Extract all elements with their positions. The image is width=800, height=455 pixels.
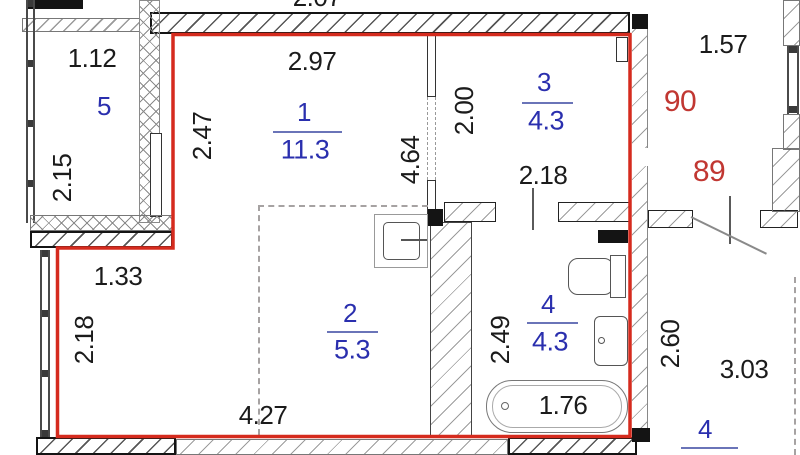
wall-room1-room3-upper bbox=[427, 34, 436, 97]
dim-room5-width: 1.12 bbox=[68, 45, 117, 71]
room-number-3: 3 bbox=[537, 69, 551, 95]
dim-bathtub-length: 1.76 bbox=[539, 392, 588, 418]
wall-far-right-mid bbox=[783, 114, 800, 150]
wall-room1-room3-dashed bbox=[427, 97, 436, 180]
dim-bath-height: 2.49 bbox=[487, 316, 513, 365]
room-area-4: 4.3 bbox=[532, 329, 568, 356]
dim-room2-left-height: 2.18 bbox=[71, 316, 97, 365]
wall-bottom-middle bbox=[176, 439, 508, 455]
room4-fraction-line bbox=[527, 322, 578, 324]
toilet-bowl bbox=[568, 258, 614, 295]
washing-machine-mark bbox=[401, 239, 427, 241]
sink-faucet-dot bbox=[598, 337, 605, 344]
wall-bath-top-right bbox=[558, 202, 630, 222]
wall-top-exterior bbox=[150, 12, 630, 34]
boundary-dashed-right bbox=[794, 277, 796, 455]
wall-bottom-right bbox=[508, 437, 637, 455]
door-leaf-entry bbox=[616, 37, 628, 62]
dim-hall-height: 4.64 bbox=[397, 136, 423, 185]
unit-number-89: 89 bbox=[693, 157, 725, 187]
room-area-1: 11.3 bbox=[281, 137, 330, 164]
dim-tick-room3 bbox=[532, 188, 534, 230]
window-far-right bbox=[787, 46, 799, 114]
wall-right-strip-gap bbox=[632, 148, 648, 166]
room-number-1: 1 bbox=[297, 99, 311, 125]
dim-room5-height: 2.15 bbox=[49, 154, 75, 203]
room-number-4-neighbor: 4 bbox=[698, 416, 712, 442]
window-balcony-left bbox=[26, 0, 35, 223]
washing-machine-drum bbox=[383, 222, 420, 260]
room-number-4: 4 bbox=[541, 291, 555, 317]
vent-shaft-black bbox=[598, 230, 628, 243]
toilet-tank bbox=[610, 255, 626, 298]
niche-dashed-horizontal bbox=[258, 205, 428, 207]
wall-balcony-top bbox=[22, 18, 140, 32]
wall-pier-black bbox=[428, 209, 443, 226]
wall-right-corner-top bbox=[632, 14, 648, 29]
unit-number-90: 90 bbox=[664, 87, 696, 117]
bathtub-drain bbox=[501, 402, 509, 410]
wall-right-strip bbox=[632, 15, 648, 437]
dim-room1-width: 2.97 bbox=[288, 48, 337, 74]
room-area-2: 5.3 bbox=[334, 337, 370, 364]
room-number-2: 2 bbox=[343, 300, 357, 326]
wall-far-right-upper bbox=[783, 0, 800, 46]
wall-corridor-bottom-right bbox=[760, 210, 798, 228]
wall-top-left-stub bbox=[28, 0, 83, 9]
wall-bottom-left bbox=[36, 437, 176, 455]
dim-room1-height: 2.47 bbox=[189, 112, 215, 161]
wall-right-corner-bottom bbox=[632, 428, 650, 442]
room3-fraction-line bbox=[522, 102, 573, 104]
room-area-3: 4.3 bbox=[528, 108, 564, 135]
room4-neighbor-fraction-line bbox=[681, 447, 738, 449]
dim-right-room-height: 2.60 bbox=[657, 320, 683, 369]
window-left-lower bbox=[40, 250, 50, 437]
wall-bath-top-left bbox=[444, 202, 496, 222]
wall-corridor-bottom-left bbox=[648, 210, 693, 228]
door-leaf-room5 bbox=[150, 133, 162, 217]
dim-top-partial: 2.07 bbox=[293, 0, 342, 10]
room1-fraction-line bbox=[273, 131, 342, 133]
wall-far-right-lower bbox=[772, 148, 800, 212]
dim-right-room-width: 3.03 bbox=[720, 356, 769, 382]
room-label-5: 5 bbox=[97, 93, 111, 119]
wall-bathroom-left bbox=[430, 222, 472, 437]
dim-corridor-width: 1.57 bbox=[699, 31, 748, 57]
room2-fraction-line bbox=[327, 331, 378, 333]
wall-under-room5-black bbox=[30, 231, 173, 248]
dim-room3-width: 2.18 bbox=[519, 162, 568, 188]
dim-niche-offset: 1.33 bbox=[94, 263, 143, 289]
wall-under-room5-gray bbox=[30, 215, 173, 231]
floor-plan: 2.07 1.12 2.15 2.97 2.47 4.64 2.00 2.18 … bbox=[0, 0, 800, 455]
dim-room3-left-height: 2.00 bbox=[451, 87, 477, 136]
dim-room2-width: 4.27 bbox=[239, 402, 288, 428]
